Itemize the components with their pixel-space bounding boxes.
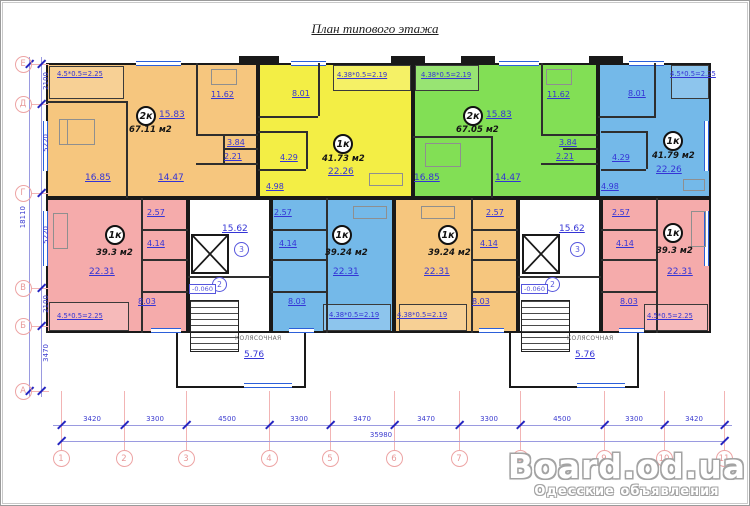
grid-axis-bubble: Е — [15, 56, 32, 73]
room-area-label: 8.03 — [288, 297, 306, 306]
grid-axis-bubble: А — [15, 383, 32, 400]
apartment-total-area: 41.79 м2 — [652, 151, 695, 161]
interior-wall — [541, 163, 598, 165]
interior-wall — [654, 63, 656, 116]
grid-line — [330, 391, 331, 451]
window — [244, 383, 292, 388]
interior-wall — [413, 136, 491, 138]
grid-axis-bubble: В — [15, 280, 32, 297]
grid-line — [604, 391, 605, 451]
interior-wall — [471, 229, 518, 231]
interior-wall — [598, 116, 656, 118]
interior-wall — [471, 259, 518, 261]
room-area-label: 2.57 — [612, 208, 630, 217]
apartment-type-badge: 1к — [333, 134, 353, 154]
room-area-label: 4.98 — [601, 182, 619, 191]
window — [289, 328, 314, 333]
interior-wall — [141, 259, 188, 261]
stroller-room-label: КОЛЯСОЧНАЯ — [235, 335, 281, 342]
interior-wall — [46, 101, 126, 103]
apartment-total-area: 39.24 м2 — [428, 248, 471, 258]
dimension-value: 3470 — [353, 415, 371, 423]
interior-wall — [141, 229, 188, 231]
interior-wall — [326, 198, 328, 333]
dimension-total: 18110 — [19, 206, 27, 228]
dimension-line — [61, 441, 724, 442]
room-area-label: 22.31 — [667, 267, 693, 277]
interior-wall — [518, 276, 601, 278]
room-area-label: 3.84 — [227, 138, 245, 147]
room-area-label: 22.31 — [89, 267, 115, 277]
interior-wall — [601, 229, 656, 231]
room-area-label: 4.14 — [279, 239, 297, 248]
grid-axis-bubble: 5 — [322, 450, 339, 467]
room-area-label: 8.01 — [292, 89, 310, 98]
interior-wall — [141, 291, 188, 293]
interior-wall — [306, 131, 308, 169]
room-number-badge: 3 — [570, 242, 585, 257]
apartment-type-badge: 1к — [663, 131, 683, 151]
page-title: План типового этажа — [1, 21, 749, 37]
watermark: Board.od.ua Одесские объявления — [508, 450, 746, 499]
interior-wall — [271, 259, 326, 261]
window — [577, 383, 625, 388]
interior-wall — [601, 169, 646, 171]
dimension-total: 35980 — [370, 431, 392, 439]
grid-line — [124, 391, 125, 451]
room-area-label: 22.26 — [656, 165, 682, 175]
room-area-label: 11.62 — [211, 90, 234, 99]
grid-axis-bubble: Г — [15, 185, 32, 202]
room-area-label: 15.83 — [486, 110, 512, 120]
room-area-label: 8.03 — [620, 297, 638, 306]
room-area-label: 2.57 — [274, 208, 292, 217]
dimension-value: 2100 — [42, 72, 50, 90]
apartment-type-badge: 2к — [136, 106, 156, 126]
apartment-type-badge: 1к — [332, 225, 352, 245]
interior-wall — [471, 291, 518, 293]
apartment-total-area: 39.3 м2 — [656, 246, 693, 256]
dimension-value: 3470 — [42, 344, 50, 362]
interior-wall — [471, 198, 473, 333]
interior-wall — [141, 198, 143, 333]
interior-wall — [601, 131, 646, 133]
room-area-label: 14.47 — [495, 173, 521, 183]
level-mark: -0.060 — [521, 284, 548, 294]
window — [499, 61, 539, 66]
interior-wall — [196, 63, 198, 136]
room-area-label: 5.76 — [244, 350, 264, 360]
elevator-shaft — [191, 234, 229, 274]
window — [291, 61, 326, 66]
apartment-total-area: 41.73 м2 — [322, 154, 365, 164]
interior-wall — [271, 229, 326, 231]
balcony-area-label: 4.5*0.5=2.25 — [57, 70, 103, 78]
window — [479, 328, 504, 333]
interior-wall — [318, 63, 320, 116]
room-area-label: 2.57 — [486, 208, 504, 217]
window — [619, 328, 644, 333]
interior-wall — [196, 134, 258, 136]
interior-wall — [601, 291, 656, 293]
room-area-label: 5.76 — [575, 350, 595, 360]
window — [151, 328, 181, 333]
bed-icon — [59, 119, 68, 145]
grid-line — [664, 391, 665, 451]
interior-wall — [271, 291, 326, 293]
apartment-total-area: 39.3 м2 — [96, 248, 133, 258]
room-area-label: 8.03 — [472, 297, 490, 306]
interior-wall — [563, 148, 598, 150]
staircase — [521, 300, 570, 352]
dimension-value: 3300 — [625, 415, 643, 423]
dimension-value: 5220 — [42, 134, 50, 152]
room-area-label: 8.01 — [628, 89, 646, 98]
interior-wall — [258, 169, 306, 171]
staircase — [190, 300, 239, 352]
grid-line — [459, 391, 460, 451]
dimension-value: 3300 — [290, 415, 308, 423]
room-area-label: 15.83 — [159, 110, 185, 120]
sofa-icon — [683, 179, 705, 191]
stroller-room-label: КОЛЯСОЧНАЯ — [567, 335, 613, 342]
grid-line — [520, 391, 521, 451]
interior-wall — [491, 136, 493, 198]
dimension-value: 3470 — [417, 415, 435, 423]
balcony-area-label: 4.38*0.5=2.19 — [397, 311, 447, 319]
apartment-total-area: 67.11 м2 — [129, 125, 172, 135]
balcony-area-label: 4.38*0.5=2.19 — [329, 311, 379, 319]
apartment-total-area: 67.05 м2 — [456, 125, 499, 135]
balcony-area-label: 4.38*0.5=2.19 — [337, 71, 387, 79]
sofa-icon — [353, 206, 387, 219]
level-mark: -0.060 — [189, 284, 216, 294]
dimension-value: 3420 — [83, 415, 101, 423]
corridor-area-label: 15.62 — [222, 224, 248, 234]
dimension-value: 3300 — [146, 415, 164, 423]
room-area-label: 4.29 — [612, 153, 630, 162]
room-area-label: 22.31 — [424, 267, 450, 277]
dimension-value: 3300 — [480, 415, 498, 423]
grid-axis-bubble: Б — [15, 318, 32, 335]
grid-line — [394, 391, 395, 451]
window — [704, 121, 709, 171]
interior-wall — [196, 163, 258, 165]
sofa-icon — [369, 173, 403, 186]
grid-axis-bubble: 4 — [261, 450, 278, 467]
room-area-label: 22.26 — [328, 167, 354, 177]
room-area-label: 16.85 — [414, 173, 440, 183]
interior-wall — [258, 131, 306, 133]
room-area-label: 4.29 — [280, 153, 298, 162]
grid-line — [186, 391, 187, 451]
grid-axis-bubble: 6 — [386, 450, 403, 467]
room-area-label: 3.84 — [559, 138, 577, 147]
room-area-label: 14.47 — [158, 173, 184, 183]
room-area-label: 22.31 — [333, 267, 359, 277]
room-area-label: 2.21 — [556, 152, 574, 161]
table-icon — [546, 69, 572, 85]
room-area-label: 11.62 — [547, 90, 570, 99]
room-area-label: 8.03 — [138, 297, 156, 306]
drawing-sheet: План типового этажа — [0, 0, 750, 506]
interior-wall — [646, 131, 648, 169]
apartment-type-badge: 2к — [463, 106, 483, 126]
room-area-label: 4.14 — [480, 239, 498, 248]
interior-wall — [223, 148, 258, 150]
balcony-area-label: 4.38*0.5=2.19 — [421, 71, 471, 79]
dimension-value: 4500 — [553, 415, 571, 423]
room-area-label: 4.14 — [147, 239, 165, 248]
window — [136, 61, 181, 66]
dimension-value: 2100 — [42, 295, 50, 313]
room-area-label: 16.85 — [85, 173, 111, 183]
facade-bay — [239, 56, 279, 64]
room-area-label: 2.57 — [147, 208, 165, 217]
interior-wall — [258, 116, 318, 118]
dimension-value: 3420 — [685, 415, 703, 423]
apartment-type-badge: 1к — [105, 225, 125, 245]
facade-bay — [461, 56, 495, 64]
room-area-label: 2.21 — [224, 152, 242, 161]
apartment-type-badge: 1к — [438, 225, 458, 245]
balcony-area-label: 4.5*0.5=2.25 — [670, 70, 716, 78]
interior-wall — [188, 276, 271, 278]
room-area-label: 4.14 — [616, 239, 634, 248]
interior-wall — [541, 134, 598, 136]
apartment-type-badge: 1к — [663, 223, 683, 243]
window — [629, 61, 664, 66]
grid-axis-bubble: 3 — [178, 450, 195, 467]
interior-wall — [126, 101, 128, 198]
room-area-label: 4.98 — [266, 182, 284, 191]
balcony-area-label: 4.5*0.5=2.25 — [647, 312, 693, 320]
grid-axis-bubble: 2 — [116, 450, 133, 467]
sofa-icon — [421, 206, 455, 219]
dimension-value: 4500 — [218, 415, 236, 423]
watermark-subtitle: Одесские объявления — [508, 484, 746, 499]
apartment-total-area: 39.24 м2 — [325, 248, 368, 258]
balcony-area-label: 4.5*0.5=2.25 — [57, 312, 103, 320]
grid-line — [269, 391, 270, 451]
watermark-brand: Board.od.ua — [508, 450, 746, 484]
grid-axis-bubble: Д — [15, 96, 32, 113]
interior-wall — [601, 259, 656, 261]
bed-icon — [425, 143, 461, 167]
facade-bay — [589, 56, 623, 64]
room-number-badge: 3 — [234, 242, 249, 257]
grid-axis-bubble: 1 — [53, 450, 70, 467]
grid-axis-bubble: 7 — [451, 450, 468, 467]
interior-wall — [541, 63, 543, 136]
dimension-value: 5220 — [42, 226, 50, 244]
elevator-shaft — [522, 234, 560, 274]
facade-bay — [391, 56, 425, 64]
sofa-icon — [691, 211, 706, 247]
corridor-area-label: 15.62 — [559, 224, 585, 234]
table-icon — [211, 69, 237, 85]
sofa-icon — [53, 213, 68, 249]
